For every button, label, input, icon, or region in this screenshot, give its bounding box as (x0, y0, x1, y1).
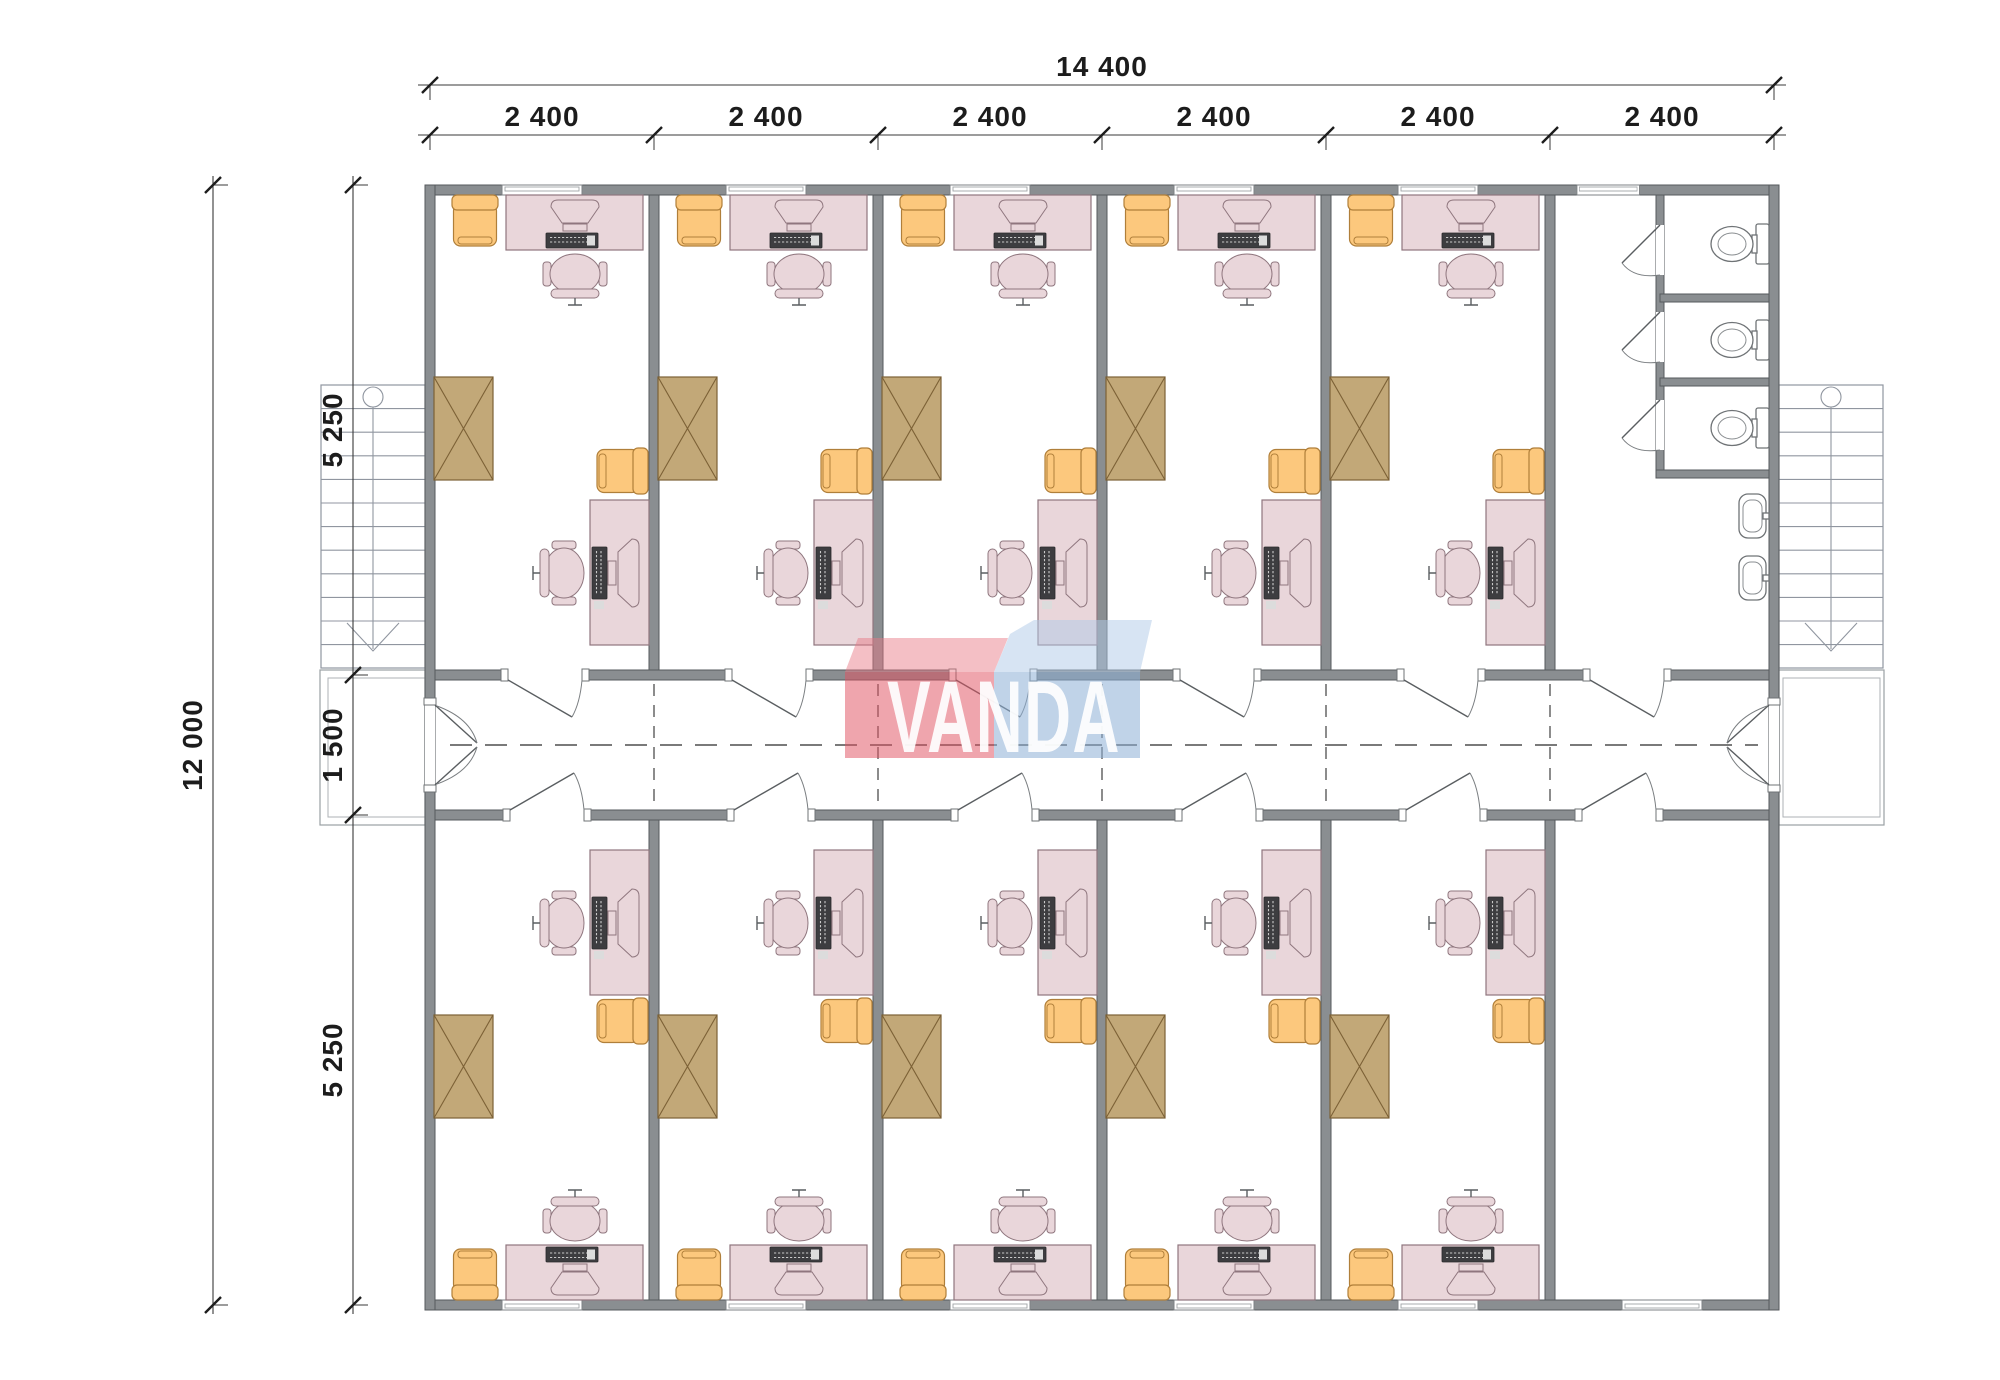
wall-desk-with-computer (533, 500, 649, 645)
office-room-top-2 (658, 195, 873, 717)
window (502, 185, 582, 195)
door-swing (727, 773, 815, 821)
desk-with-computer (954, 1190, 1091, 1300)
armchair (1269, 998, 1320, 1044)
dimension-label: 1 500 (317, 707, 348, 782)
window (1174, 185, 1254, 195)
window (1577, 185, 1639, 195)
window (726, 185, 806, 195)
armchair (821, 998, 872, 1044)
wardrobe-cabinet (1106, 1015, 1165, 1118)
stall-door (1622, 225, 1664, 276)
empty-room-bottom-6 (1575, 773, 1663, 821)
dimension-label: 5 250 (317, 392, 348, 467)
desk-with-computer (506, 195, 643, 305)
desk-with-computer (506, 1190, 643, 1300)
window (950, 1300, 1030, 1310)
window (1398, 1300, 1478, 1310)
office-room-bottom-3 (882, 773, 1097, 1300)
window (1398, 185, 1478, 195)
armchair (1045, 448, 1096, 494)
desk-with-computer (730, 195, 867, 305)
wall-desk-with-computer (757, 500, 873, 645)
wardrobe-cabinet (658, 377, 717, 480)
entrance-vestibule-right (1779, 670, 1884, 825)
floor-plan-canvas: 14 400 2 400 2 400 2 400 2 400 2 400 2 4… (0, 0, 2000, 1380)
window (502, 1300, 582, 1310)
office-room-top-1 (434, 195, 649, 717)
logo-text: VANDA (887, 660, 1121, 774)
door-swing (501, 669, 589, 717)
wardrobe-cabinet (882, 1015, 941, 1118)
wardrobe-cabinet (1330, 377, 1389, 480)
stall-divider-wall (1660, 378, 1769, 386)
corridor-wall-bottom (435, 810, 1769, 820)
wardrobe-cabinet (1330, 1015, 1389, 1118)
office-room-bottom-5 (1330, 773, 1545, 1300)
armchair (1124, 1249, 1170, 1300)
armchair (900, 1249, 946, 1300)
door-swing (725, 669, 813, 717)
armchair (1493, 998, 1544, 1044)
armchair (597, 998, 648, 1044)
office-room-bottom-2 (658, 773, 873, 1300)
armchair (452, 1249, 498, 1300)
office-room-bottom-4 (1106, 773, 1321, 1300)
dimension-label: 14 400 (1056, 51, 1148, 82)
exterior-wall-bottom (425, 1300, 1779, 1310)
staircase-right (1779, 385, 1883, 668)
armchair (676, 195, 722, 246)
armchair (1045, 998, 1096, 1044)
door-swing (1575, 773, 1663, 821)
desk-with-computer (954, 195, 1091, 305)
wall-desk-with-computer (757, 850, 873, 995)
stall-door (1622, 400, 1664, 451)
exterior-wall-top (425, 185, 1779, 195)
stall-divider-wall (1660, 294, 1769, 302)
dimension-label: 2 400 (952, 101, 1027, 132)
armchair (452, 195, 498, 246)
dimension-label: 2 400 (1624, 101, 1699, 132)
partition-wall (1545, 820, 1555, 1300)
dimension-label: 2 400 (1400, 101, 1475, 132)
dimension-bays: 2 400 2 400 2 400 2 400 2 400 2 400 (418, 101, 1786, 150)
dimension-label: 2 400 (504, 101, 579, 132)
dimension-label: 12 000 (177, 699, 208, 791)
wall-desk-with-computer (1205, 850, 1321, 995)
stall-bottom-wall (1656, 470, 1769, 478)
door-swing (1397, 669, 1485, 717)
vanda-watermark: VANDA (845, 620, 1152, 775)
wall-desk-with-computer (1429, 500, 1545, 645)
wash-basin (1739, 494, 1769, 538)
armchair (821, 448, 872, 494)
wall-desk-with-computer (981, 850, 1097, 995)
wardrobe-cabinet (882, 377, 941, 480)
toilet (1711, 320, 1769, 360)
door-swing (1173, 669, 1261, 717)
stall-door (1622, 312, 1664, 363)
dimension-total-height: 12 000 (177, 176, 228, 1314)
armchair (1493, 448, 1544, 494)
floor-plan-drawing: 14 400 2 400 2 400 2 400 2 400 2 400 2 4… (0, 0, 2000, 1380)
office-room-bottom-1 (434, 773, 649, 1300)
door-swing (1399, 773, 1487, 821)
wall-desk-with-computer (1429, 850, 1545, 995)
partition-wall (1545, 195, 1555, 670)
office-room-top-5 (1330, 195, 1545, 717)
desk-with-computer (1178, 1190, 1315, 1300)
wardrobe-cabinet (1106, 377, 1165, 480)
wardrobe-cabinet (434, 1015, 493, 1118)
armchair (1348, 195, 1394, 246)
door-swing (1175, 773, 1263, 821)
window (1174, 1300, 1254, 1310)
wardrobe-cabinet (434, 377, 493, 480)
dimension-label: 2 400 (728, 101, 803, 132)
wash-basin (1739, 556, 1769, 600)
desk-with-computer (1178, 195, 1315, 305)
door-swing (951, 773, 1039, 821)
dimension-label: 5 250 (317, 1022, 348, 1097)
armchair (597, 448, 648, 494)
desk-with-computer (1402, 195, 1539, 305)
wardrobe-cabinet (658, 1015, 717, 1118)
armchair (1348, 1249, 1394, 1300)
toilet (1711, 224, 1769, 264)
wall-desk-with-computer (1205, 500, 1321, 645)
window (726, 1300, 806, 1310)
window (950, 185, 1030, 195)
armchair (900, 195, 946, 246)
dimension-total-width: 14 400 (418, 51, 1786, 100)
armchair (676, 1249, 722, 1300)
toilet (1711, 408, 1769, 448)
window (1622, 1300, 1702, 1310)
desk-with-computer (730, 1190, 867, 1300)
armchair (1269, 448, 1320, 494)
wall-desk-with-computer (533, 850, 649, 995)
door-swing (503, 773, 591, 821)
armchair (1124, 195, 1170, 246)
dimension-label: 2 400 (1176, 101, 1251, 132)
door-swing (1583, 669, 1671, 717)
desk-with-computer (1402, 1190, 1539, 1300)
